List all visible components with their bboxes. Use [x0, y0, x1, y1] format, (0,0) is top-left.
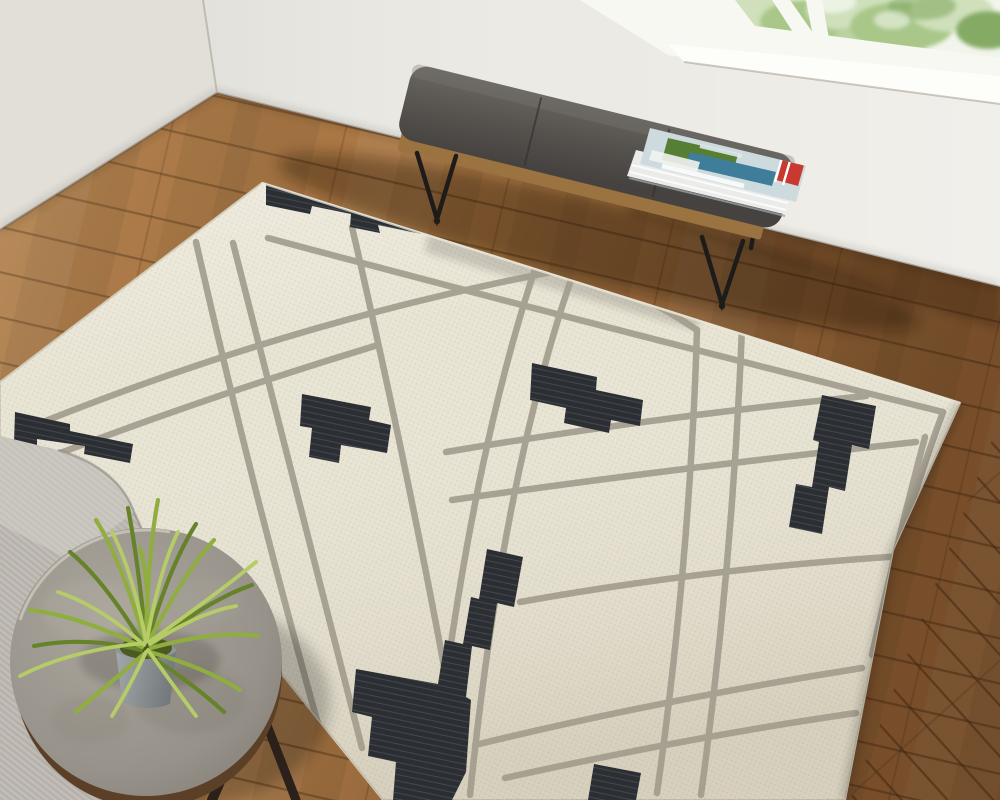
leg-foot [719, 303, 725, 309]
leg-foot [434, 218, 440, 224]
room-scene [0, 0, 1000, 800]
room-photo [0, 0, 1000, 800]
